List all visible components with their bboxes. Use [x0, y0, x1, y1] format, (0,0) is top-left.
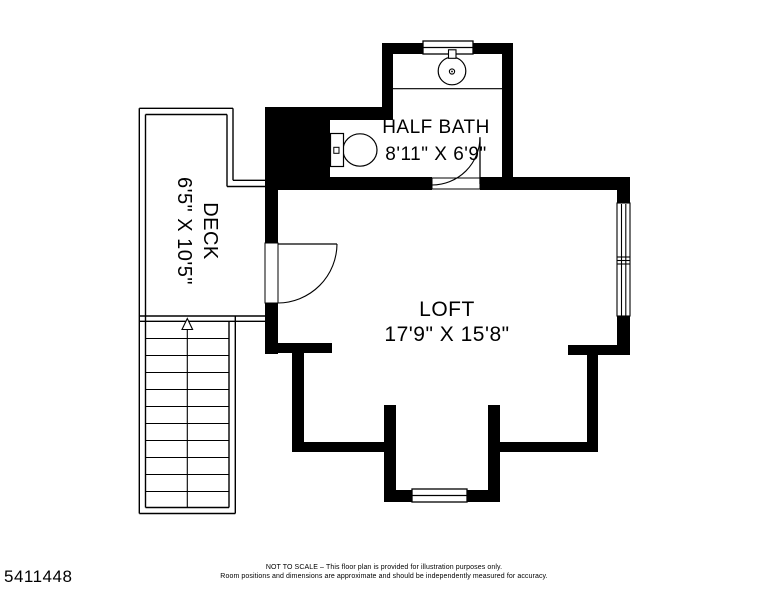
sink-icon: [438, 50, 466, 85]
disclaimer: NOT TO SCALE – This floor plan is provid…: [54, 564, 714, 581]
wall-right-knee-vertical: [587, 355, 598, 445]
loft-dimensions: 17'9" X 15'8": [337, 323, 557, 347]
wall-right-knee-stub: [568, 345, 630, 355]
wall-bottom-right: [490, 442, 598, 452]
wall-loft-top-right: [480, 177, 630, 190]
door-swing-arc: [278, 244, 337, 303]
wall-loft-top-left: [265, 177, 432, 190]
deck-label: DECK: [197, 131, 223, 331]
disclaimer-line-1: NOT TO SCALE – This floor plan is provid…: [54, 564, 714, 573]
floor-plan-drawing: [0, 0, 768, 594]
window-right: [617, 203, 630, 316]
wall-bottom-left: [293, 442, 392, 452]
wall-loft-left-lower: [265, 303, 278, 354]
deck-door: [265, 243, 337, 303]
wall-loft-left-upper: [265, 177, 278, 243]
floor-plan-page: HALF BATH 8'11" X 6'9" LOFT 17'9" X 15'8…: [0, 0, 768, 594]
window-bottom: [412, 489, 467, 502]
deck-label-block: DECK 6'5" X 10'5": [169, 131, 223, 331]
wall-bottom-bumpout-left: [384, 405, 396, 502]
deck-dimensions: 6'5" X 10'5": [171, 131, 197, 331]
wall-left-knee-stub: [278, 343, 332, 353]
wall-bottom-bumpout-right: [488, 405, 500, 502]
half-bath-label: HALF BATH: [346, 117, 526, 139]
half-bath-dimensions: 8'11" X 6'9": [346, 144, 526, 166]
wall-bumpout-right: [502, 43, 513, 188]
wall-loft-right-upper: [617, 177, 630, 204]
walls: [265, 43, 630, 502]
wall-left-knee-vertical: [292, 353, 304, 452]
wall-bottom-bumpout-bottom-left: [384, 490, 412, 502]
disclaimer-line-2: Room positions and dimensions are approx…: [54, 573, 714, 582]
wall-bottom-bumpout-bottom-right: [467, 490, 500, 502]
loft-label: LOFT: [357, 298, 537, 322]
stairs: [139, 316, 266, 514]
